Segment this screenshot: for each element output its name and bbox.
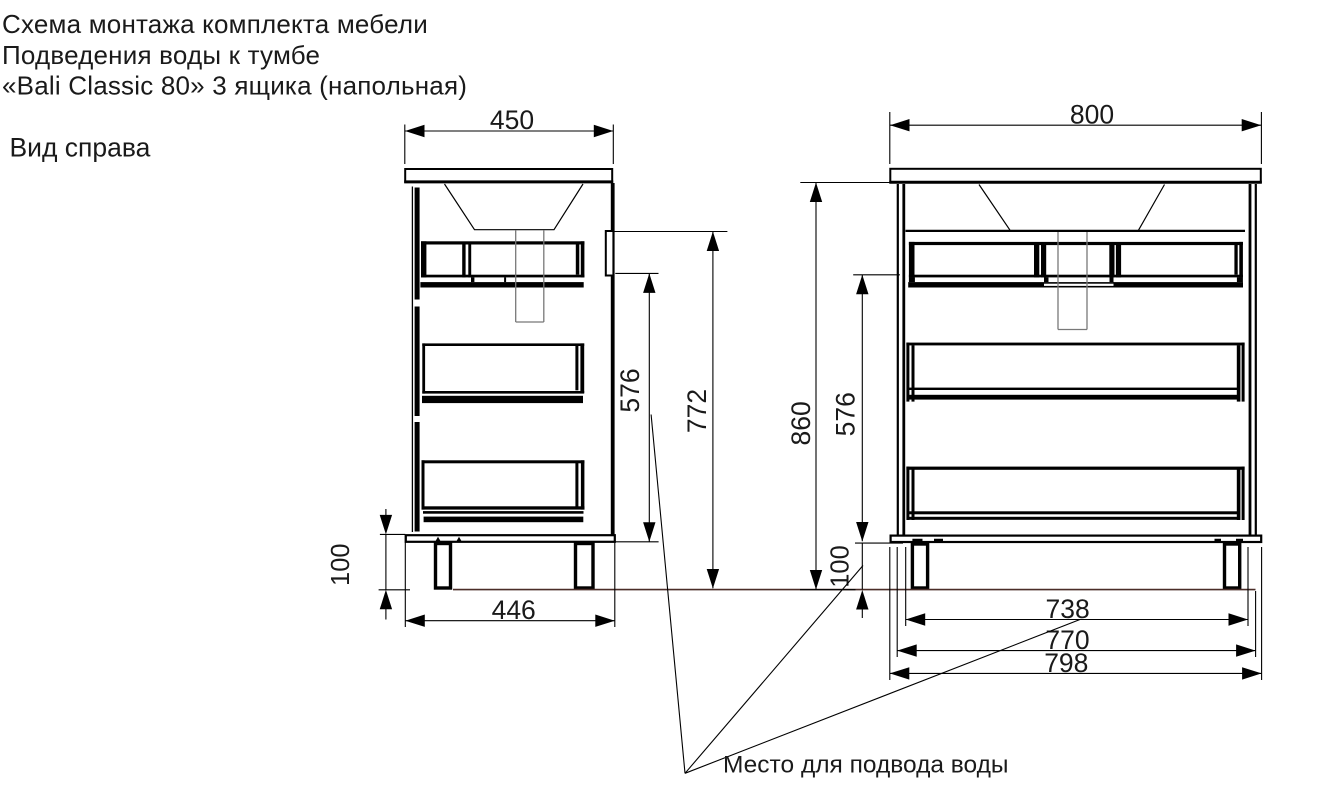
- svg-text:Вид справа: Вид справа: [10, 133, 151, 163]
- svg-text:772: 772: [682, 389, 712, 433]
- svg-text:Схема монтажа комплекта мебели: Схема монтажа комплекта мебели: [2, 9, 428, 39]
- svg-text:446: 446: [492, 595, 536, 625]
- svg-text:Подведения воды к тумбе: Подведения воды к тумбе: [2, 40, 320, 70]
- svg-text:738: 738: [1045, 594, 1089, 624]
- svg-text:800: 800: [1070, 100, 1114, 130]
- svg-text:450: 450: [490, 105, 534, 135]
- svg-text:«Bali Classic 80» 3 ящика (нап: «Bali Classic 80» 3 ящика (напольная): [2, 70, 467, 100]
- svg-text:860: 860: [786, 401, 816, 445]
- svg-text:Место для подвода воды: Место для подвода воды: [723, 752, 1009, 779]
- svg-text:100: 100: [826, 545, 854, 588]
- svg-text:576: 576: [831, 392, 861, 436]
- svg-text:798: 798: [1044, 648, 1088, 678]
- svg-text:100: 100: [327, 543, 355, 586]
- svg-text:576: 576: [615, 368, 645, 412]
